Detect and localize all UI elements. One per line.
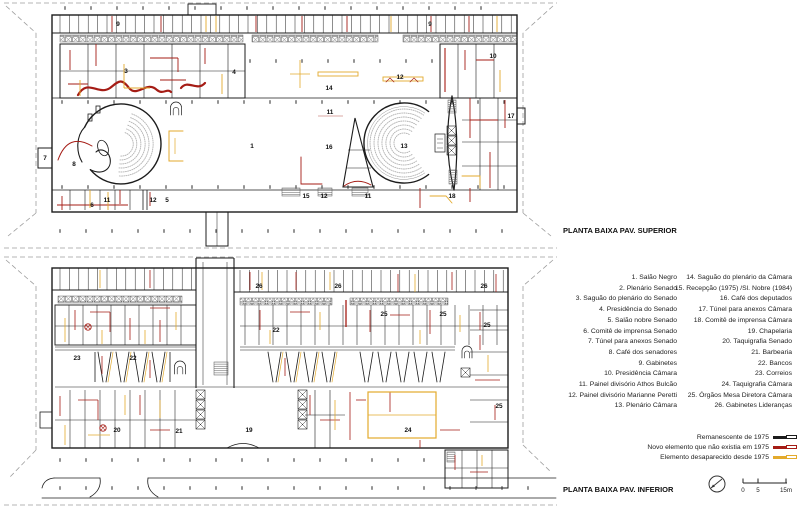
room-label: 22 <box>129 355 137 362</box>
lower-plan-title: PLANTA BAIXA PAV. INFERIOR <box>563 485 673 494</box>
room-label: 6 <box>90 202 94 209</box>
room-label: 25 <box>483 322 491 329</box>
color-legend: Remanescente de 1975Novo elemento que nã… <box>537 432 797 462</box>
color-legend-label: Novo elemento que não existia em 1975 <box>647 444 769 451</box>
room-label: 22 <box>272 327 280 334</box>
room-label: 14 <box>325 85 333 92</box>
room-label: 19 <box>245 427 253 434</box>
room-label: 13 <box>400 143 408 150</box>
room-label: 25 <box>380 311 388 318</box>
north-arrow-icon <box>709 476 725 492</box>
room-label: 9 <box>428 21 432 28</box>
legend-room-item: 10. Presidência Câmara <box>568 369 677 380</box>
room-label: 21 <box>175 428 183 435</box>
scale-bar-label: 0 <box>741 487 745 494</box>
room-label: 26 <box>480 283 488 290</box>
legend-room-item: 8. Café dos senadores <box>568 348 677 359</box>
color-legend-row: Novo elemento que não existia em 1975 <box>537 442 797 452</box>
legend-room-item: 11. Painel divisório Athos Bulcão <box>568 380 677 391</box>
legend-room-item: 16. Café dos deputados <box>675 294 792 305</box>
legend-room-item: 2. Plenário Senado <box>568 284 677 295</box>
color-legend-label: Remanescente de 1975 <box>697 434 769 441</box>
room-label: 11 <box>327 109 334 116</box>
legend-room-item: 20. Taquigrafia Senado <box>675 337 792 348</box>
legend-room-item: 25. Órgãos Mesa Diretora Câmara <box>675 391 792 402</box>
room-label: 7 <box>43 155 47 162</box>
legend-room-item: 22. Bancos <box>675 359 792 370</box>
room-label: 23 <box>73 355 81 362</box>
site-boundary <box>4 3 557 505</box>
legend-room-item: 26. Gabinetes Lideranças <box>675 401 792 412</box>
scale-bar-label: 5 <box>756 487 760 494</box>
legend-room-item: 21. Barbearia <box>675 348 792 359</box>
color-legend-swatch <box>773 435 797 439</box>
legend-room-item: 15. Recepção (1975) /Sl. Nobre (1984) <box>675 284 792 295</box>
legend-room-item: 18. Comitê de imprensa Câmara <box>675 316 792 327</box>
room-label: 4 <box>232 69 236 76</box>
color-legend-swatch <box>773 455 797 459</box>
legend-room-item: 17. Túnel para anexos Câmara <box>675 305 792 316</box>
legend-room-item: 9. Gabinetes <box>568 359 677 370</box>
room-label: 8 <box>72 161 76 168</box>
legend-room-item: 23. Correios <box>675 369 792 380</box>
upper-plan-title: PLANTA BAIXA PAV. SUPERIOR <box>563 226 677 235</box>
legend-room-item: 14. Saguão do plenário da Câmara <box>675 273 792 284</box>
scale-bar-label: 15m <box>780 487 792 494</box>
room-label: 12 <box>396 74 404 81</box>
room-label: 26 <box>334 283 342 290</box>
room-label: 11 <box>104 197 111 204</box>
legend-room-item: 19. Chapelaria <box>675 327 792 338</box>
room-label: 16 <box>325 144 333 151</box>
scale-bar: 0515m <box>741 479 792 495</box>
room-label: 20 <box>113 427 121 434</box>
room-label: 15 <box>302 193 310 200</box>
color-legend-label: Elemento desaparecido desde 1975 <box>660 454 769 461</box>
room-label: 25 <box>495 403 503 410</box>
legend-room-item: 24. Taquigrafia Câmara <box>675 380 792 391</box>
room-label: 5 <box>165 197 169 204</box>
color-legend-swatch <box>773 445 797 449</box>
room-label: 1 <box>250 143 254 150</box>
legend-room-list-col2: 14. Saguão do plenário da Câmara15. Rece… <box>675 273 792 412</box>
room-label: 24 <box>404 427 412 434</box>
legend-room-item: 3. Saguão do plenário do Senado <box>568 294 677 305</box>
legend-room-item: 4. Presidência do Senado <box>568 305 677 316</box>
room-label: 26 <box>255 283 263 290</box>
page-root: { "document": { "upper_plan_title": "PLA… <box>0 0 800 510</box>
legend-room-item: 12. Painel divisório Marianne Peretti <box>568 391 677 402</box>
color-legend-row: Elemento desaparecido desde 1975 <box>537 452 797 462</box>
room-label: 10 <box>489 53 497 60</box>
legend-room-list-col1: 1. Salão Negro2. Plenário Senado3. Saguã… <box>568 273 677 412</box>
room-label: 25 <box>439 311 447 318</box>
room-label: 3 <box>124 68 128 75</box>
color-legend-row: Remanescente de 1975 <box>537 432 797 442</box>
legend-room-item: 7. Túnel para anexos Senado <box>568 337 677 348</box>
legend-room-item: 1. Salão Negro <box>568 273 677 284</box>
legend-room-item: 13. Plenário Câmara <box>568 401 677 412</box>
upper-plan <box>38 4 525 246</box>
room-label: 9 <box>116 21 120 28</box>
room-label: 18 <box>448 193 456 200</box>
room-label: 12 <box>320 193 328 200</box>
legend-room-item: 6. Comitê de imprensa Senado <box>568 327 677 338</box>
lower-plan <box>40 258 556 498</box>
room-label: 12 <box>149 197 157 204</box>
room-label: 17 <box>507 113 515 120</box>
upper-plan-room-labels: 99341012141116113177861112515121118 <box>43 21 515 209</box>
room-label: 11 <box>365 193 372 200</box>
legend-room-item: 5. Salão nobre Senado <box>568 316 677 327</box>
lower-plan-room-labels: 2626262525252522232220211924 <box>73 283 503 435</box>
